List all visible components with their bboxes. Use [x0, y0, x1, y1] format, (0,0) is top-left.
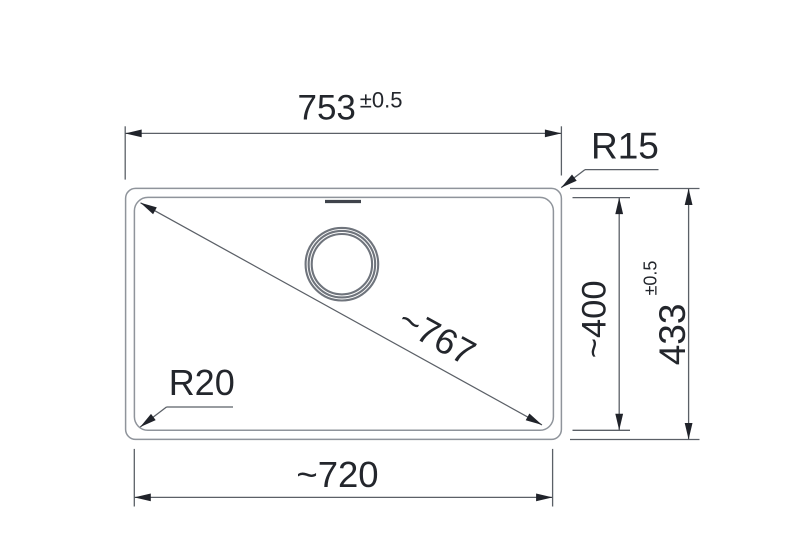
- svg-text:±0.5: ±0.5: [641, 261, 661, 296]
- svg-text:R15: R15: [591, 125, 659, 166]
- svg-text:~720: ~720: [296, 454, 378, 495]
- svg-text:R20: R20: [169, 362, 235, 403]
- svg-text:~767: ~767: [392, 298, 483, 373]
- svg-text:433: 433: [652, 304, 693, 366]
- svg-text:±0.5: ±0.5: [360, 88, 403, 113]
- svg-text:~400: ~400: [576, 280, 614, 358]
- svg-text:753: 753: [298, 89, 356, 128]
